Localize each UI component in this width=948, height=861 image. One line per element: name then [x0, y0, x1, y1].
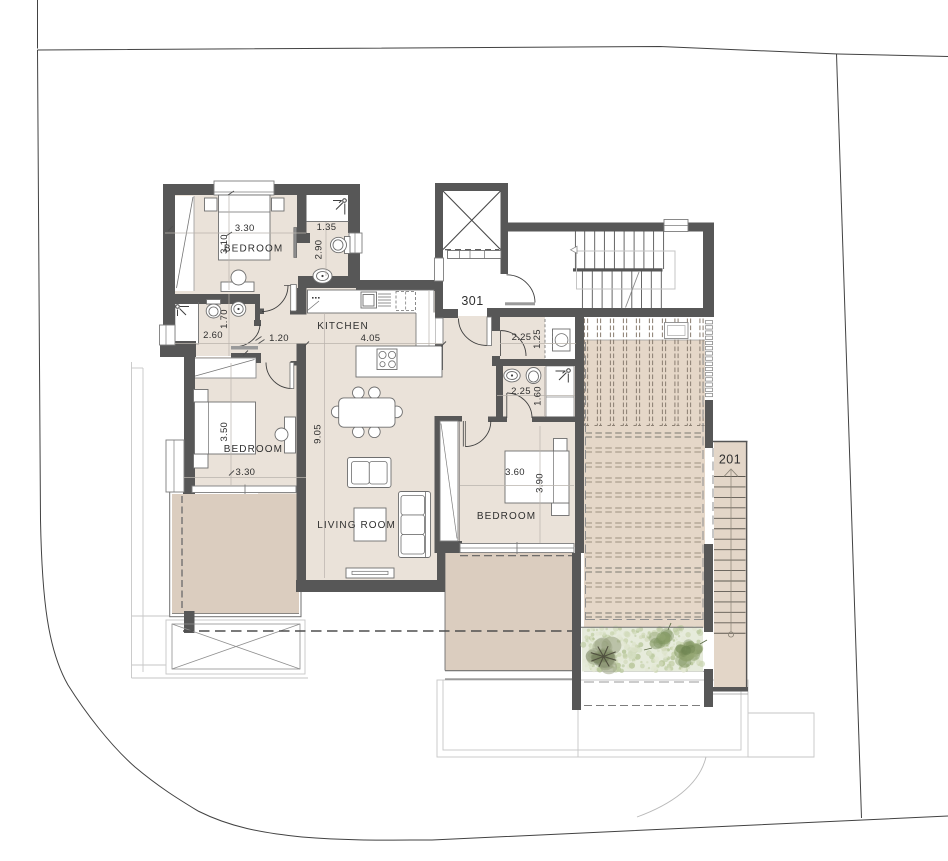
- svg-text:3.30: 3.30: [236, 467, 256, 478]
- svg-text:2.90: 2.90: [314, 240, 325, 260]
- svg-text:4.05: 4.05: [361, 333, 381, 344]
- svg-text:3.50: 3.50: [219, 422, 230, 442]
- svg-text:301: 301: [461, 294, 483, 308]
- svg-text:2.25: 2.25: [511, 386, 531, 397]
- svg-text:1.60: 1.60: [532, 386, 543, 406]
- svg-text:KITCHEN: KITCHEN: [317, 321, 369, 332]
- svg-text:2.25: 2.25: [512, 332, 532, 343]
- svg-text:BEDROOM: BEDROOM: [224, 444, 283, 455]
- svg-text:3.30: 3.30: [235, 223, 255, 234]
- svg-text:3.60: 3.60: [505, 467, 525, 478]
- svg-text:3.90: 3.90: [534, 473, 545, 493]
- svg-text:1.70: 1.70: [219, 309, 230, 329]
- svg-text:BEDROOM: BEDROOM: [477, 511, 536, 522]
- svg-text:9.05: 9.05: [313, 424, 324, 444]
- svg-text:1.35: 1.35: [317, 222, 337, 233]
- svg-text:BEDROOM: BEDROOM: [224, 244, 283, 255]
- svg-text:201: 201: [719, 452, 741, 466]
- svg-text:LIVING ROOM: LIVING ROOM: [317, 520, 396, 531]
- svg-text:1.25: 1.25: [532, 329, 543, 349]
- svg-text:2.60: 2.60: [203, 330, 223, 341]
- svg-text:1.20: 1.20: [269, 333, 289, 344]
